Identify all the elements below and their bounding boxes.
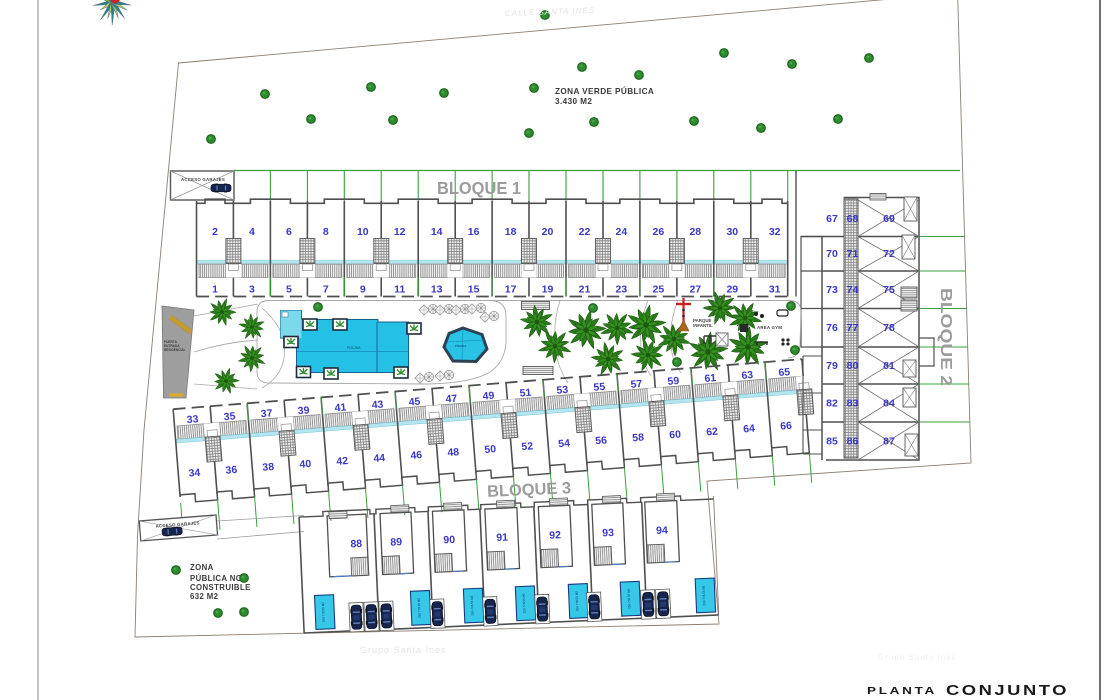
svg-text:3.430 M2: 3.430 M2	[555, 97, 592, 106]
svg-text:Grupo Santa Ines: Grupo Santa Ines	[878, 653, 957, 662]
svg-text:32: 32	[769, 226, 781, 238]
svg-text:68: 68	[847, 213, 859, 225]
svg-text:40: 40	[299, 458, 312, 471]
svg-text:50: 50	[484, 443, 497, 456]
svg-text:5: 5	[286, 284, 292, 296]
svg-text:58: 58	[632, 431, 645, 444]
svg-text:46: 46	[410, 449, 423, 462]
svg-text:4: 4	[249, 226, 255, 238]
svg-text:36: 36	[225, 464, 238, 477]
svg-text:84: 84	[883, 398, 895, 410]
svg-text:2: 2	[212, 226, 218, 238]
svg-text:61: 61	[704, 372, 717, 385]
svg-text:92: 92	[549, 529, 561, 542]
svg-text:86: 86	[847, 436, 859, 448]
svg-text:48: 48	[447, 446, 460, 459]
svg-text:ZONA: ZONA	[190, 563, 214, 572]
svg-text:BLOQUE 1: BLOQUE 1	[437, 178, 521, 198]
svg-text:INFANTIL: INFANTIL	[693, 323, 713, 328]
svg-text:RESIDENCIAL: RESIDENCIAL	[164, 348, 186, 352]
svg-text:78: 78	[883, 322, 895, 334]
svg-text:56: 56	[595, 434, 608, 447]
svg-text:8: 8	[323, 226, 329, 238]
svg-text:25: 25	[653, 284, 665, 296]
svg-text:57: 57	[630, 378, 643, 391]
svg-text:85: 85	[826, 436, 838, 448]
svg-text:26: 26	[653, 226, 665, 238]
svg-text:27: 27	[689, 284, 701, 296]
svg-text:44: 44	[373, 452, 386, 465]
svg-text:94: 94	[656, 525, 668, 538]
svg-text:76: 76	[826, 322, 838, 334]
svg-text:75: 75	[883, 284, 895, 296]
svg-text:89: 89	[390, 536, 402, 549]
svg-text:71: 71	[847, 248, 859, 260]
svg-text:22: 22	[579, 226, 591, 238]
svg-text:CONJUNTO: CONJUNTO	[946, 683, 1069, 699]
svg-text:PÚBLICA NO: PÚBLICA NO	[190, 574, 242, 583]
svg-text:81: 81	[883, 360, 895, 372]
svg-text:53: 53	[556, 384, 569, 397]
svg-text:64: 64	[743, 423, 756, 436]
svg-text:74: 74	[847, 284, 859, 296]
svg-text:65: 65	[778, 366, 791, 379]
svg-text:20: 20	[542, 226, 554, 238]
svg-text:PISCINA: PISCINA	[455, 344, 466, 348]
svg-text:52: 52	[521, 440, 534, 453]
svg-text:PLANTA: PLANTA	[867, 686, 937, 697]
svg-text:38: 38	[262, 461, 275, 474]
svg-text:ACCESO GARAJES: ACCESO GARAJES	[181, 177, 225, 182]
svg-text:91: 91	[496, 532, 508, 545]
svg-text:29: 29	[726, 284, 738, 296]
svg-text:Grupo Santa Ines: Grupo Santa Ines	[360, 645, 447, 655]
svg-text:AREA GYM: AREA GYM	[757, 325, 782, 330]
svg-text:7: 7	[323, 284, 329, 296]
svg-text:BLOQUE 3: BLOQUE 3	[487, 479, 572, 501]
svg-text:82: 82	[826, 398, 838, 410]
svg-text:18: 18	[505, 226, 517, 238]
svg-text:54: 54	[558, 437, 571, 450]
svg-text:6: 6	[286, 226, 292, 238]
svg-text:42: 42	[336, 455, 349, 468]
svg-text:3: 3	[249, 284, 255, 296]
svg-text:PISCINA: PISCINA	[347, 346, 361, 350]
svg-text:67: 67	[826, 213, 838, 225]
svg-text:45: 45	[408, 396, 421, 409]
svg-text:35: 35	[223, 410, 236, 423]
svg-text:1: 1	[212, 284, 218, 296]
svg-text:55: 55	[593, 381, 606, 394]
svg-text:79: 79	[826, 360, 838, 372]
svg-text:9: 9	[360, 284, 366, 296]
svg-text:41: 41	[334, 401, 347, 414]
svg-text:83: 83	[847, 398, 859, 410]
svg-text:80: 80	[847, 360, 859, 372]
svg-text:16: 16	[468, 226, 480, 238]
svg-text:77: 77	[847, 322, 859, 334]
svg-text:88: 88	[350, 538, 362, 551]
svg-text:12: 12	[394, 226, 406, 238]
svg-text:47: 47	[445, 393, 458, 406]
svg-text:51: 51	[519, 387, 532, 400]
svg-text:90: 90	[443, 534, 455, 547]
svg-text:ZONA VERDE PÚBLICA: ZONA VERDE PÚBLICA	[555, 85, 654, 96]
svg-text:10: 10	[357, 226, 369, 238]
svg-text:87: 87	[883, 436, 895, 448]
svg-text:39: 39	[297, 404, 310, 417]
svg-text:72: 72	[883, 248, 895, 260]
svg-text:17: 17	[505, 284, 517, 296]
svg-text:CONSTRUIBLE: CONSTRUIBLE	[190, 583, 251, 592]
svg-text:BLOQUE 2: BLOQUE 2	[937, 288, 954, 386]
svg-text:70: 70	[826, 248, 838, 260]
svg-text:43: 43	[371, 399, 384, 412]
svg-text:21: 21	[579, 284, 591, 296]
svg-text:73: 73	[826, 284, 838, 296]
svg-text:63: 63	[741, 369, 754, 382]
svg-text:13: 13	[431, 284, 443, 296]
svg-text:33: 33	[186, 413, 199, 426]
svg-text:49: 49	[482, 390, 495, 403]
svg-text:11: 11	[394, 284, 405, 296]
svg-text:60: 60	[669, 428, 682, 441]
svg-text:24: 24	[616, 226, 628, 238]
svg-text:37: 37	[260, 407, 273, 420]
svg-text:14: 14	[431, 226, 443, 238]
svg-text:19: 19	[542, 284, 554, 296]
svg-text:34: 34	[188, 467, 201, 480]
svg-text:31: 31	[769, 284, 781, 296]
svg-text:28: 28	[689, 226, 701, 238]
svg-text:93: 93	[602, 527, 614, 540]
svg-text:30: 30	[726, 226, 738, 238]
svg-text:66: 66	[780, 420, 793, 433]
svg-text:62: 62	[706, 426, 719, 439]
svg-text:69: 69	[883, 213, 895, 225]
svg-text:23: 23	[616, 284, 628, 296]
svg-text:59: 59	[667, 375, 680, 388]
svg-text:632 M2: 632 M2	[190, 592, 219, 601]
svg-text:15: 15	[468, 284, 480, 296]
